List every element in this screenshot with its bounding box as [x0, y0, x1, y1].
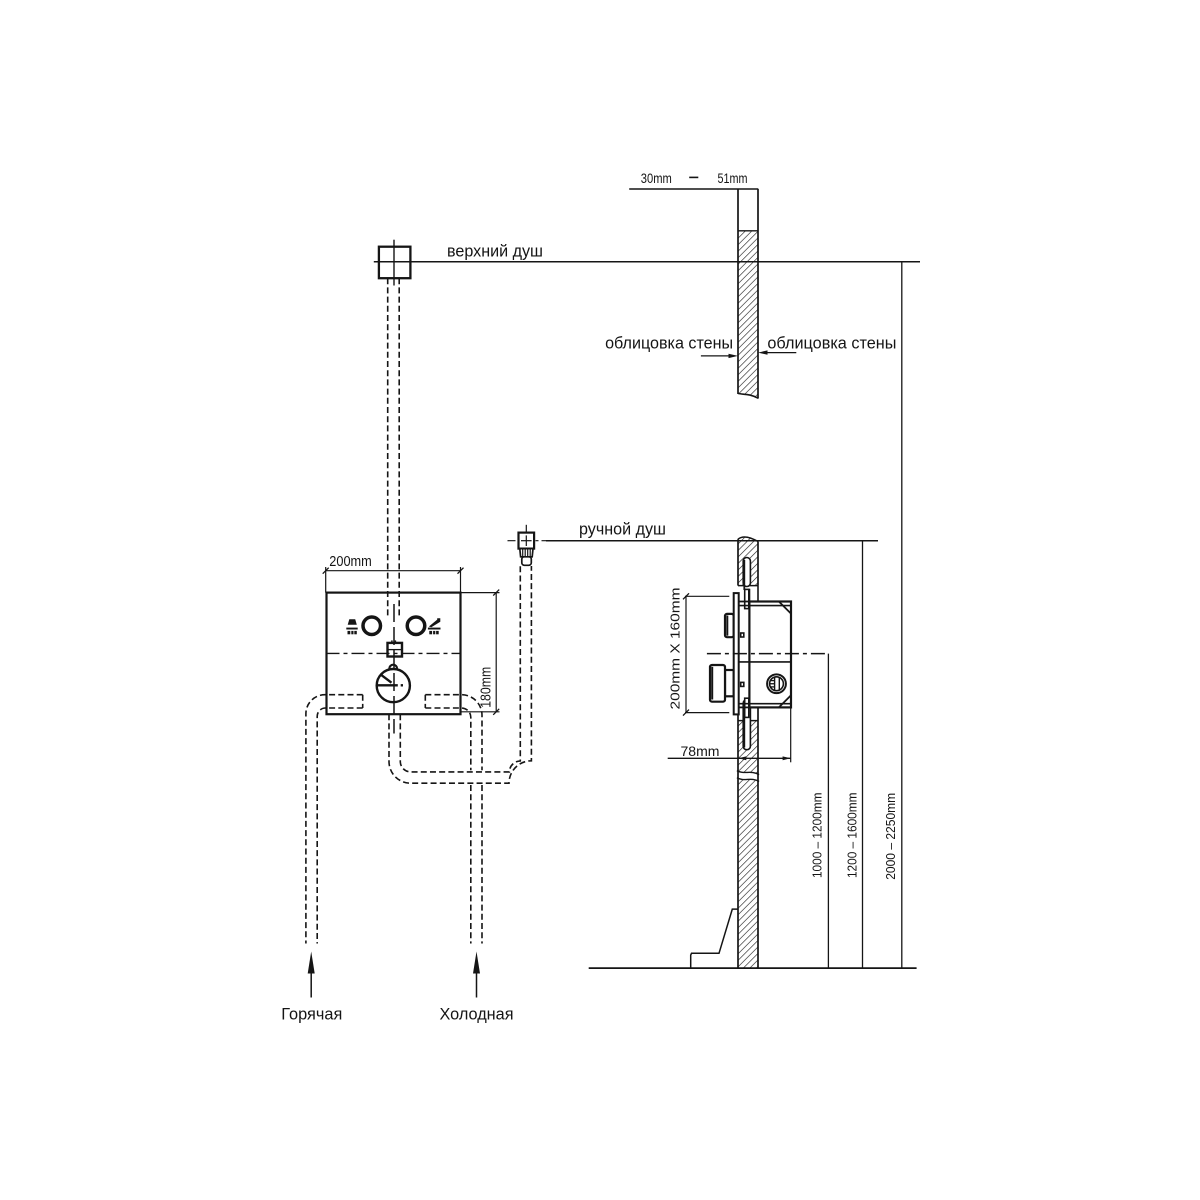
svg-text:верхний душ: верхний душ [447, 242, 543, 261]
svg-text:51mm: 51mm [718, 170, 748, 186]
svg-text:облицовка стены: облицовка стены [767, 334, 896, 352]
svg-text:ручной душ: ручной душ [579, 520, 666, 539]
svg-text:облицовка стены: облицовка стены [605, 334, 733, 352]
svg-text:30mm: 30mm [641, 170, 672, 186]
svg-text:200mm X 160mm: 200mm X 160mm [668, 588, 683, 710]
svg-text:1200 – 1600mm: 1200 – 1600mm [845, 793, 860, 879]
svg-text:Горячая: Горячая [281, 1005, 342, 1024]
svg-text:200mm: 200mm [329, 554, 372, 570]
svg-text:2000 – 2250mm: 2000 – 2250mm [883, 793, 898, 880]
svg-text:78mm: 78mm [681, 743, 720, 759]
svg-text:180mm: 180mm [479, 667, 495, 708]
svg-text:1000 – 1200mm: 1000 – 1200mm [810, 793, 825, 879]
svg-text:Холодная: Холодная [440, 1005, 514, 1024]
